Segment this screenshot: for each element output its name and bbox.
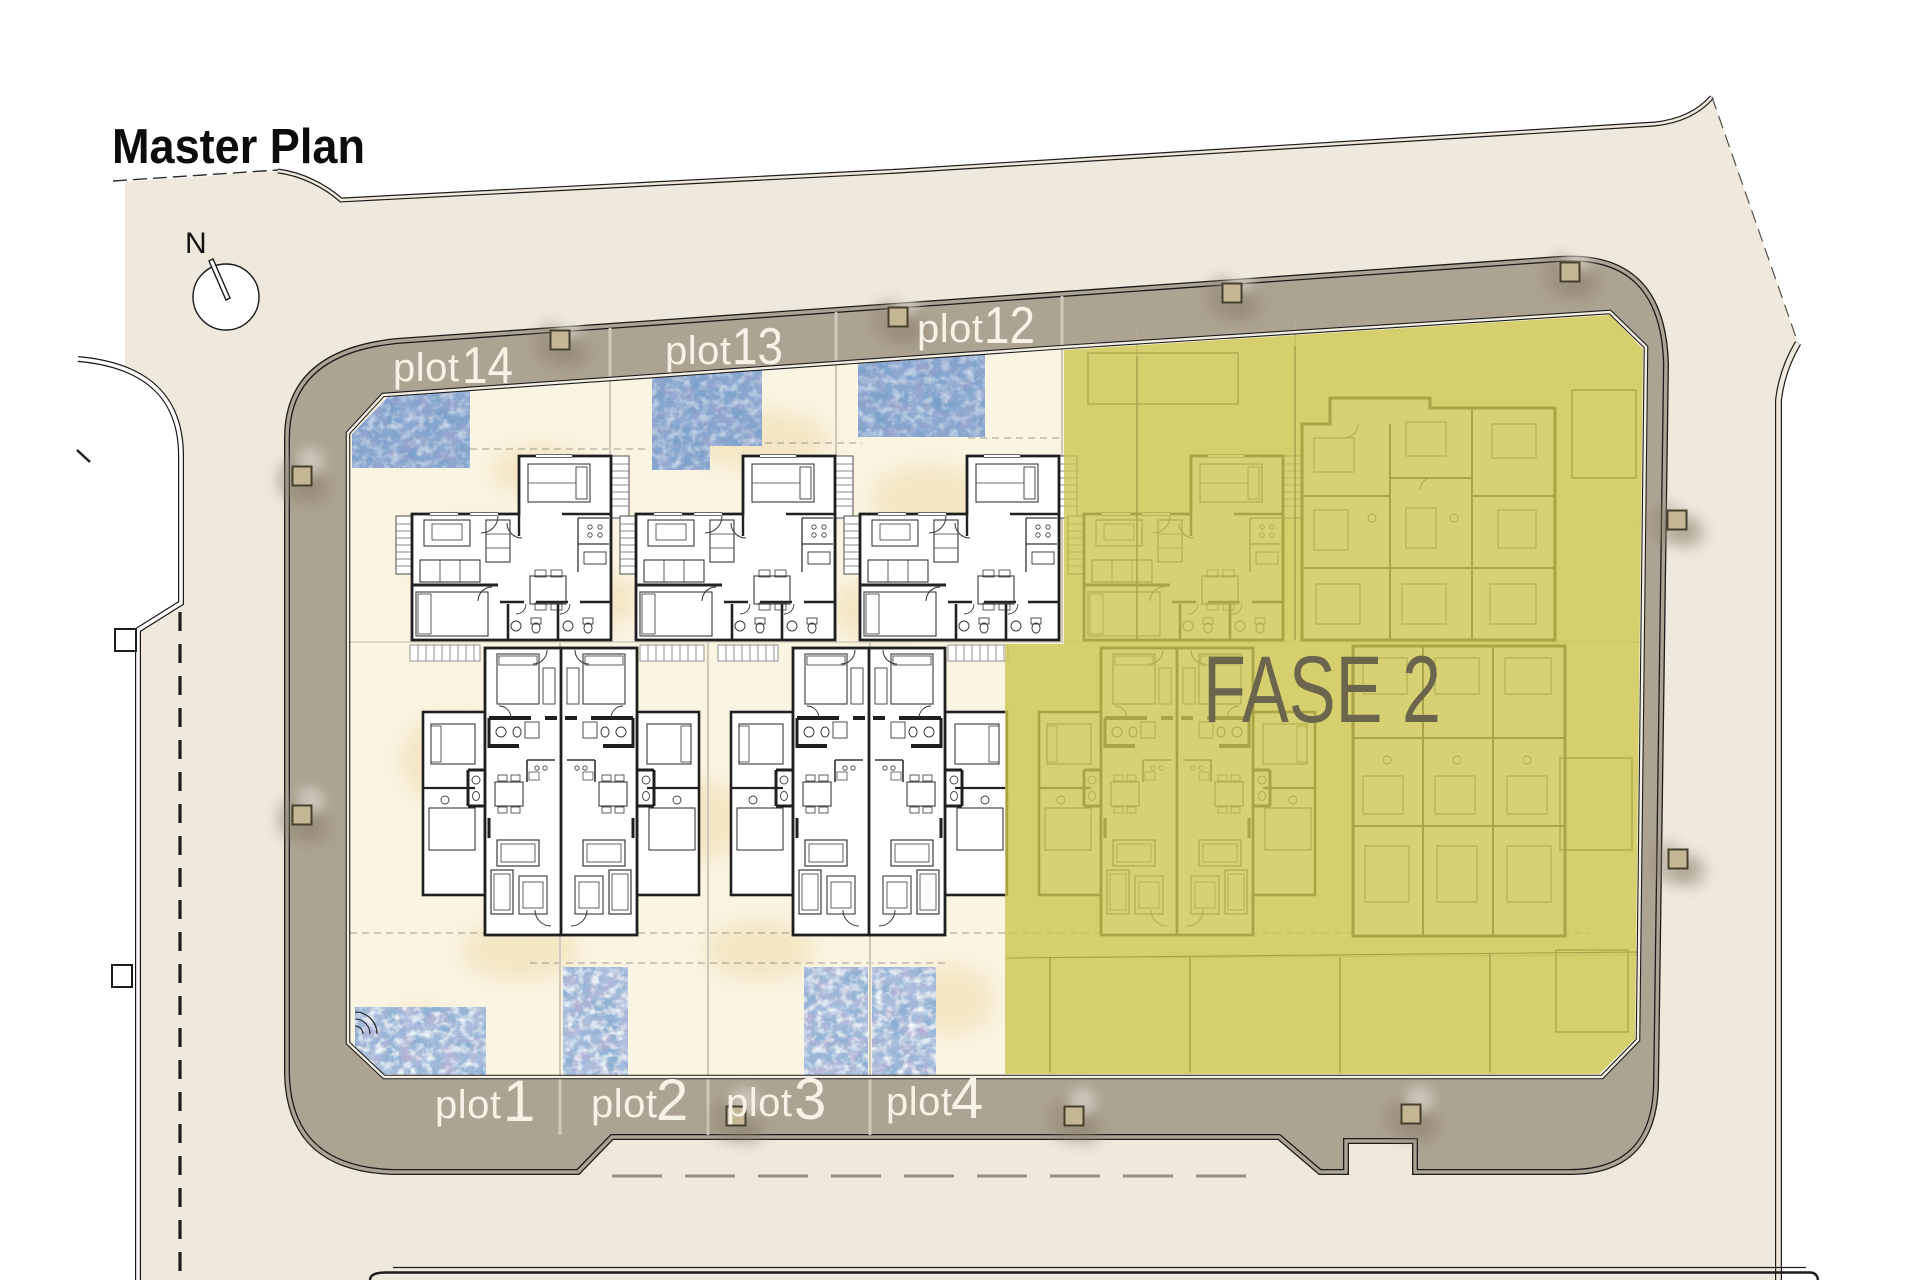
svg-text:plot: plot (886, 1080, 953, 1124)
svg-text:4: 4 (951, 1066, 983, 1131)
svg-text:plot: plot (665, 329, 732, 373)
svg-text:N: N (185, 227, 207, 260)
svg-text:13: 13 (732, 318, 783, 376)
svg-text:3: 3 (794, 1067, 826, 1132)
svg-text:plot: plot (726, 1081, 793, 1125)
svg-text:FASE 2: FASE 2 (1203, 637, 1441, 743)
svg-text:plot: plot (591, 1082, 658, 1126)
svg-text:Master Plan: Master Plan (112, 120, 365, 174)
svg-text:plot: plot (917, 307, 984, 351)
svg-text:2: 2 (656, 1068, 688, 1133)
svg-text:14: 14 (462, 337, 513, 395)
svg-text:1: 1 (503, 1069, 535, 1134)
svg-text:plot: plot (393, 346, 460, 390)
svg-text:12: 12 (984, 297, 1035, 355)
svg-text:plot: plot (435, 1083, 502, 1127)
